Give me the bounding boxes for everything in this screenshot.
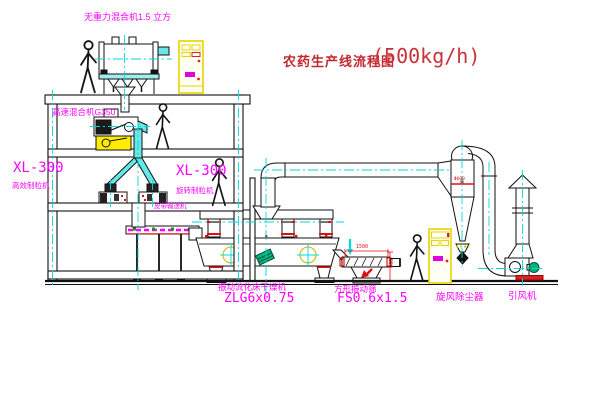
worker-figure-4: [411, 235, 424, 280]
sieve-model-label: FS0.6x1.5: [337, 292, 407, 305]
sieve-length-dimension: 1500: [356, 245, 368, 250]
page-title-capacity: (500kg/h): [372, 46, 480, 66]
cyclone-label: 旋风除尘器: [436, 293, 484, 303]
control-cabinet-upper: [179, 41, 203, 93]
worker-figure-2: [157, 104, 170, 149]
control-cabinet-lower: [429, 229, 451, 283]
ground-line: [45, 281, 558, 285]
dryer-model-label: ZLG6x0.75: [224, 292, 294, 305]
cyclone-outlet-pipe: [481, 167, 507, 276]
y-splitter-pipe: [107, 158, 157, 184]
fan-label: 引风机: [508, 292, 537, 302]
discharge-chute: [132, 203, 145, 227]
cyclone-separator: [451, 146, 495, 264]
granulator-right-model: XL-300: [176, 164, 227, 178]
induced-draft-fan: [505, 244, 543, 280]
flow-diagram-canvas: 无重力混合机1.5 立方 农药生产线流程图 (500kg/h) 高速混合机G35…: [0, 0, 600, 403]
gravity-mixer-label: 无重力混合机1.5 立方: [84, 13, 171, 22]
granulator-right-name: 旋转制粒机: [176, 187, 214, 195]
granulator-left-name: 高效制粒机: [12, 182, 50, 190]
sieve-height-dimension: 550: [387, 259, 392, 268]
exhaust-duct: [261, 161, 451, 196]
belt-conveyor-label: 皮带输送机: [154, 204, 187, 211]
high-speed-mixer-label: 高速混合机G350: [52, 108, 115, 117]
worker-figure-1: [81, 41, 96, 92]
granulator-right: [139, 184, 167, 203]
granulator-left: [99, 184, 127, 203]
cyclone-size-note: Φ600: [454, 178, 465, 183]
exhaust-hood: [253, 178, 280, 219]
granulator-left-model: XL-300: [13, 161, 64, 175]
